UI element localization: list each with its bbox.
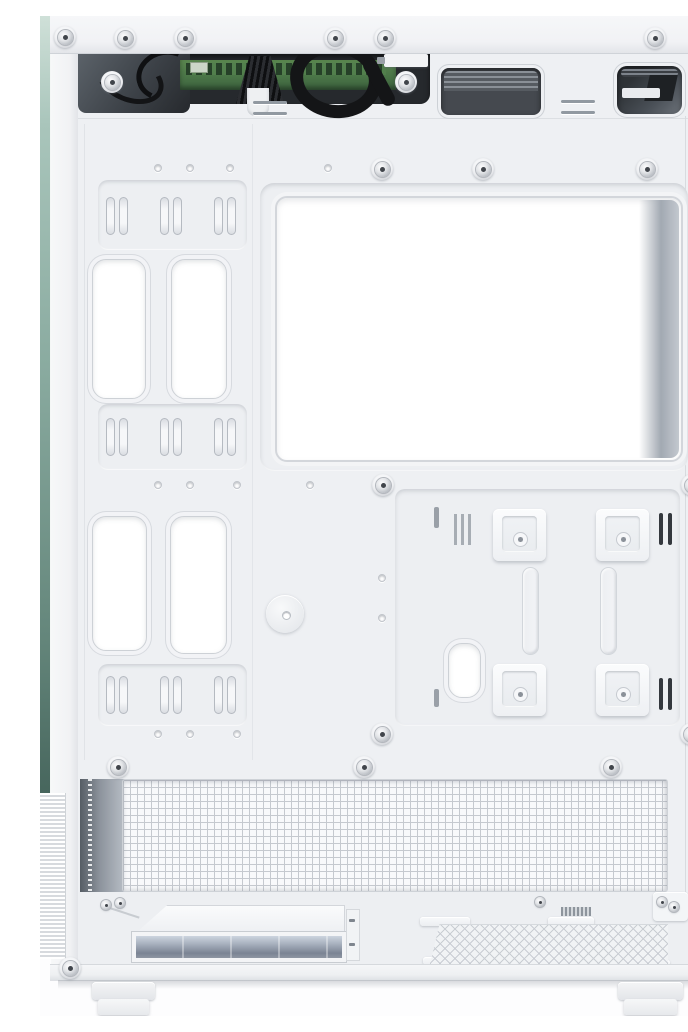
cable-tie-point	[104, 197, 130, 235]
ssd-bracket	[493, 664, 546, 716]
cable-grommet	[170, 516, 227, 654]
screw-head-small	[669, 902, 679, 912]
cable-tie-point	[212, 676, 238, 714]
cable-tie-point	[104, 676, 130, 714]
cable-tie-point	[212, 197, 238, 235]
screw-head	[648, 31, 663, 46]
screw-head	[476, 162, 491, 177]
screw-hole	[154, 730, 162, 738]
cable-tie-point	[158, 676, 184, 714]
cable-grommet	[171, 259, 227, 399]
cable-grommet	[448, 643, 481, 698]
screw-hole	[186, 730, 194, 738]
screw-head	[328, 31, 343, 46]
screw-head	[118, 31, 133, 46]
screw-head-small	[535, 897, 545, 907]
screw-head	[375, 162, 390, 177]
screw-head	[63, 961, 78, 976]
screw-head	[357, 760, 372, 775]
screw-head	[604, 760, 619, 775]
screw-hole	[233, 481, 241, 489]
screw-hole	[306, 481, 314, 489]
slot-pair-dark	[659, 678, 674, 710]
cable-tie-point	[212, 418, 238, 456]
screw-hole	[154, 481, 162, 489]
screw-head-small	[657, 897, 667, 907]
slot-pair-dark	[659, 513, 674, 545]
screw-head	[399, 75, 414, 90]
screw-head	[640, 162, 655, 177]
cable-tie-point	[104, 418, 130, 456]
cable-grommet	[92, 259, 146, 399]
generated-parts-layer	[40, 16, 688, 1016]
screw-head	[375, 727, 390, 742]
screw-head	[111, 760, 126, 775]
screw-head	[178, 31, 193, 46]
ssd-bracket	[493, 509, 546, 561]
ssd-bracket	[596, 664, 649, 716]
screw-head-small	[115, 898, 125, 908]
cable-grommet	[92, 516, 147, 651]
screw-hole	[226, 164, 234, 172]
ssd-bracket	[596, 509, 649, 561]
screw-hole	[233, 730, 241, 738]
routing-groove	[522, 567, 539, 655]
screw-hole	[154, 164, 162, 172]
screw-head-small	[101, 900, 111, 910]
routing-groove	[600, 567, 617, 655]
screw-hole	[324, 164, 332, 172]
screw-head	[376, 478, 391, 493]
screw-head	[58, 30, 73, 45]
screw-head	[105, 75, 120, 90]
cable-tie-point	[158, 197, 184, 235]
screw-hole	[186, 164, 194, 172]
screw-head	[378, 31, 393, 46]
pc-case-interior-photo	[40, 16, 688, 1016]
screw-hole	[378, 574, 386, 582]
screw-hole	[186, 481, 194, 489]
screw-hole	[378, 614, 386, 622]
cable-tie-point	[158, 418, 184, 456]
